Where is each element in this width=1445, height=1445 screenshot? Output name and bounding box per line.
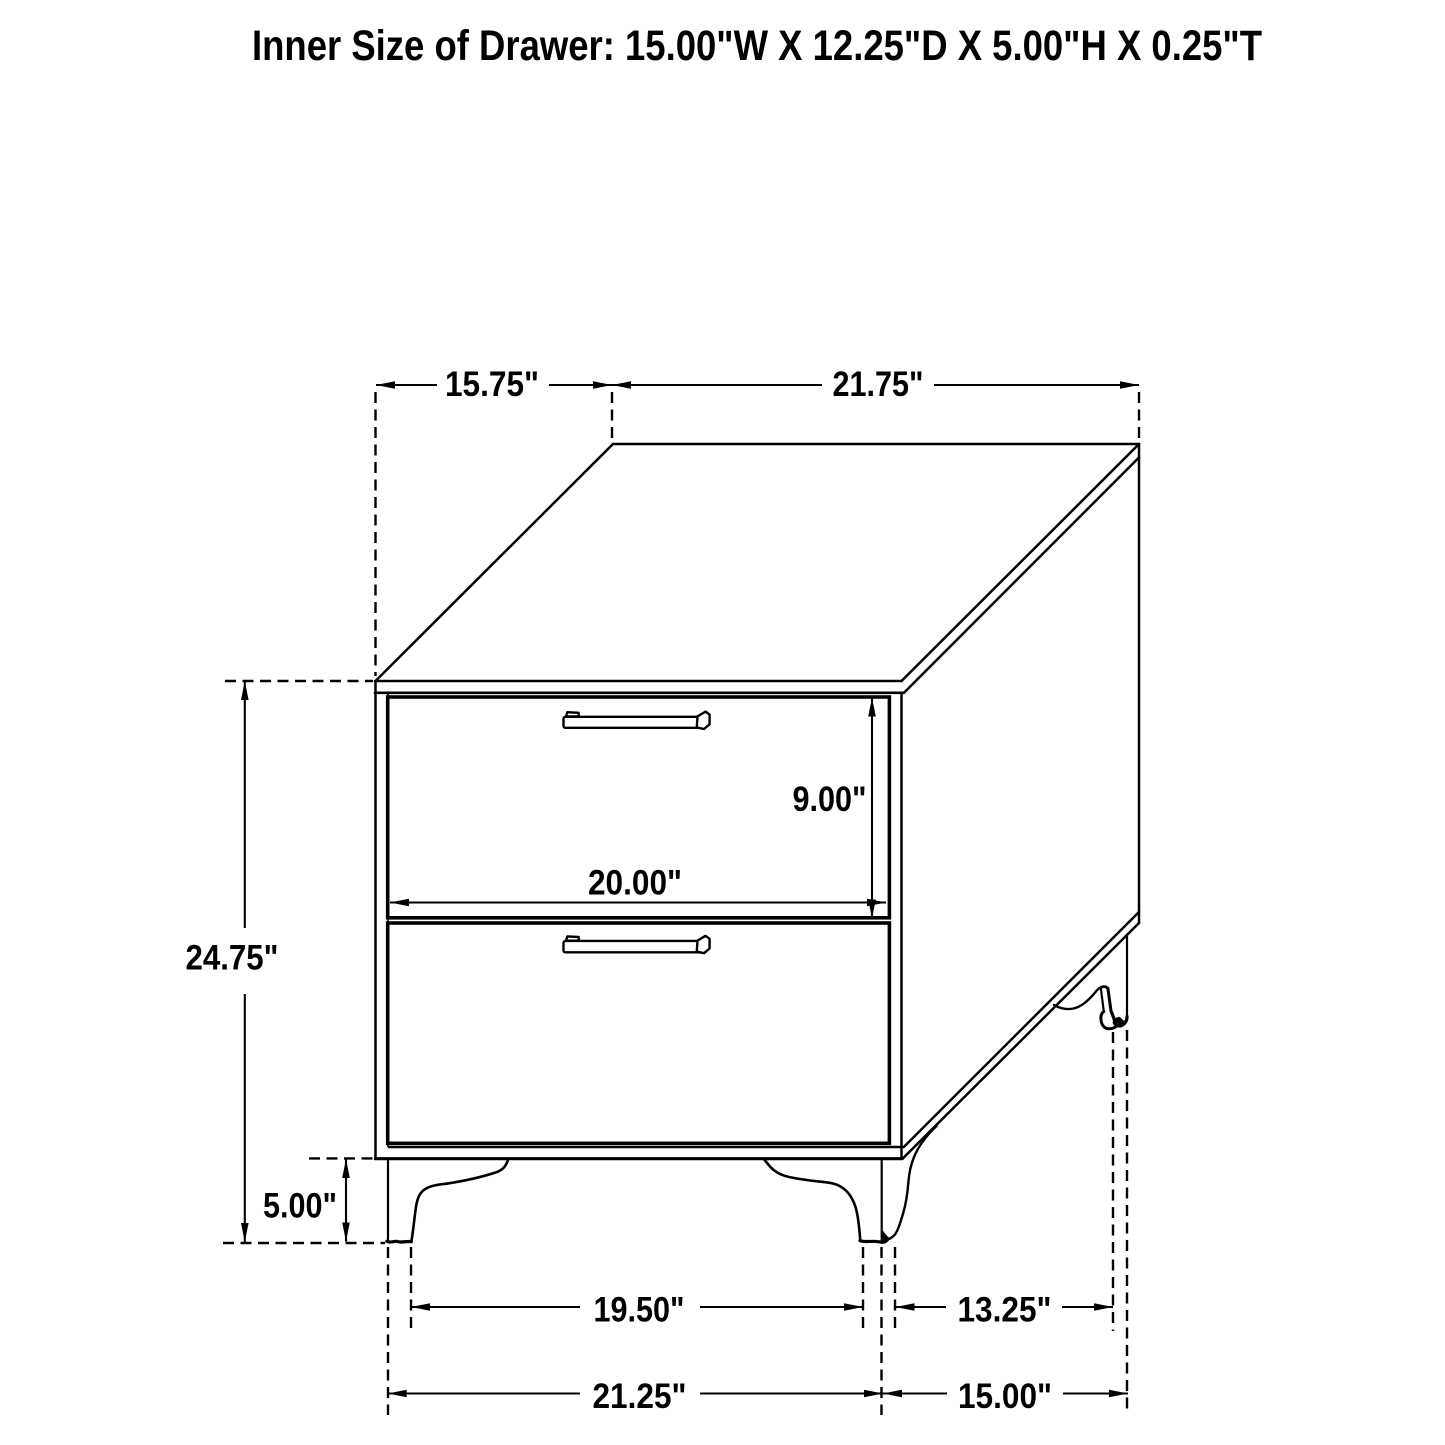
svg-text:19.50": 19.50" [594, 1291, 685, 1330]
svg-text:15.75": 15.75" [445, 365, 539, 404]
svg-text:15.00": 15.00" [958, 1377, 1052, 1416]
svg-text:13.25": 13.25" [958, 1291, 1052, 1330]
svg-text:Inner Size of Drawer: 15.00"W: Inner Size of Drawer: 15.00"W X 12.25"D … [252, 23, 1262, 70]
svg-text:20.00": 20.00" [588, 864, 682, 903]
svg-text:21.25": 21.25" [593, 1377, 687, 1416]
svg-text:21.75": 21.75" [833, 365, 924, 404]
svg-text:9.00": 9.00" [793, 780, 867, 819]
svg-text:24.75": 24.75" [186, 939, 279, 978]
svg-text:5.00": 5.00" [263, 1187, 337, 1226]
